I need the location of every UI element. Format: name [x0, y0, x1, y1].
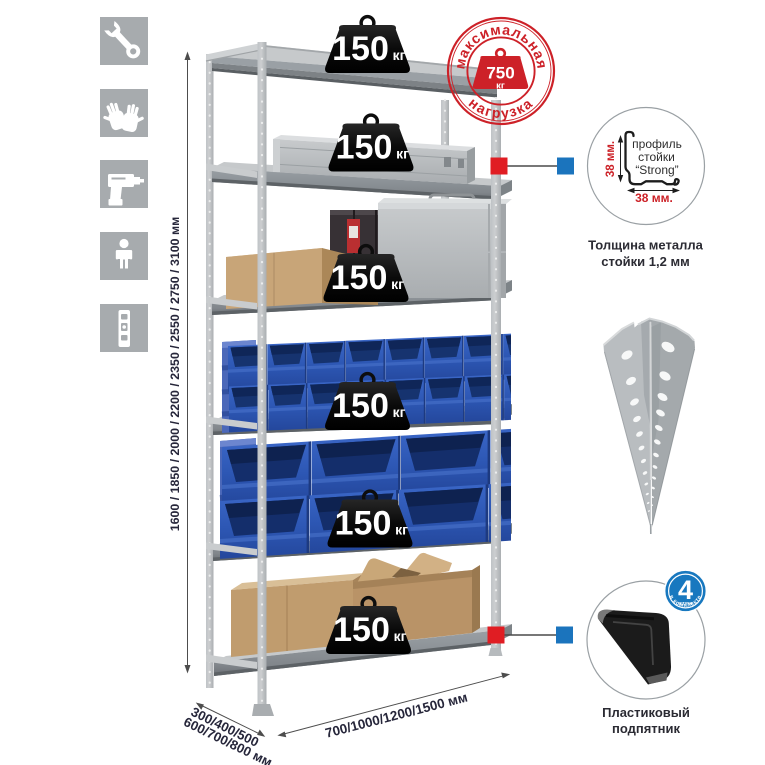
svg-text:Толщина металла: Толщина металла: [588, 238, 703, 253]
svg-text:“Strong”: “Strong”: [635, 163, 678, 177]
svg-text:стойки 1,2 мм: стойки 1,2 мм: [601, 254, 689, 269]
svg-text:1600 / 1850 / 2000 / 2200 / 23: 1600 / 1850 / 2000 / 2200 / 2350 / 2550 …: [168, 217, 182, 532]
svg-text:38 мм.: 38 мм.: [605, 141, 617, 177]
svg-text:стойки: стойки: [638, 150, 675, 164]
svg-text:38 мм.: 38 мм.: [635, 191, 673, 205]
svg-text:кг: кг: [496, 81, 505, 92]
svg-text:подпятник: подпятник: [612, 721, 681, 736]
svg-text:профиль: профиль: [632, 137, 682, 151]
svg-text:Пластиковый: Пластиковый: [602, 705, 690, 720]
